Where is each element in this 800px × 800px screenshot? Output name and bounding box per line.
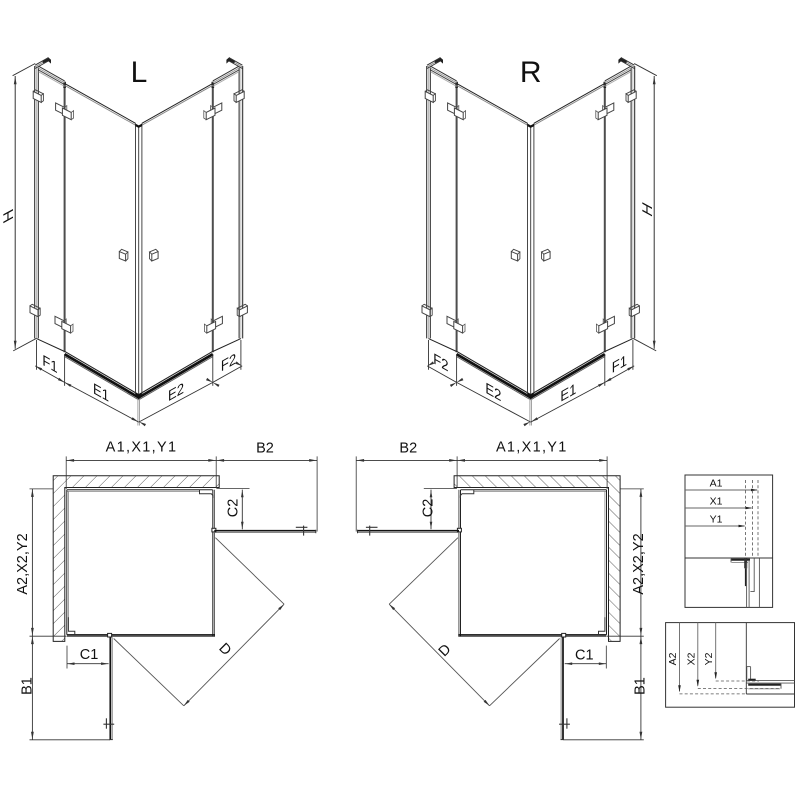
svg-text:A1: A1 xyxy=(710,478,723,490)
svg-text:A1,X1,Y1: A1,X1,Y1 xyxy=(496,440,568,456)
svg-text:X2: X2 xyxy=(685,652,697,665)
svg-text:B1: B1 xyxy=(20,677,36,695)
svg-text:Y1: Y1 xyxy=(710,514,723,526)
svg-text:R: R xyxy=(520,56,542,89)
svg-text:X1: X1 xyxy=(710,496,723,508)
svg-text:Y2: Y2 xyxy=(703,652,715,665)
svg-text:L: L xyxy=(131,56,148,89)
svg-text:B2: B2 xyxy=(399,441,417,457)
svg-text:B1: B1 xyxy=(633,677,649,695)
svg-text:C1: C1 xyxy=(575,648,594,664)
svg-text:A2,X2,Y2: A2,X2,Y2 xyxy=(15,533,31,594)
svg-text:A2,X2,Y2: A2,X2,Y2 xyxy=(631,533,647,594)
svg-text:B2: B2 xyxy=(256,441,274,457)
svg-text:C1: C1 xyxy=(80,647,99,663)
svg-text:C2: C2 xyxy=(421,499,437,518)
svg-text:A1,X1,Y1: A1,X1,Y1 xyxy=(106,440,178,456)
svg-text:C2: C2 xyxy=(226,499,242,518)
svg-text:A2: A2 xyxy=(667,652,679,665)
